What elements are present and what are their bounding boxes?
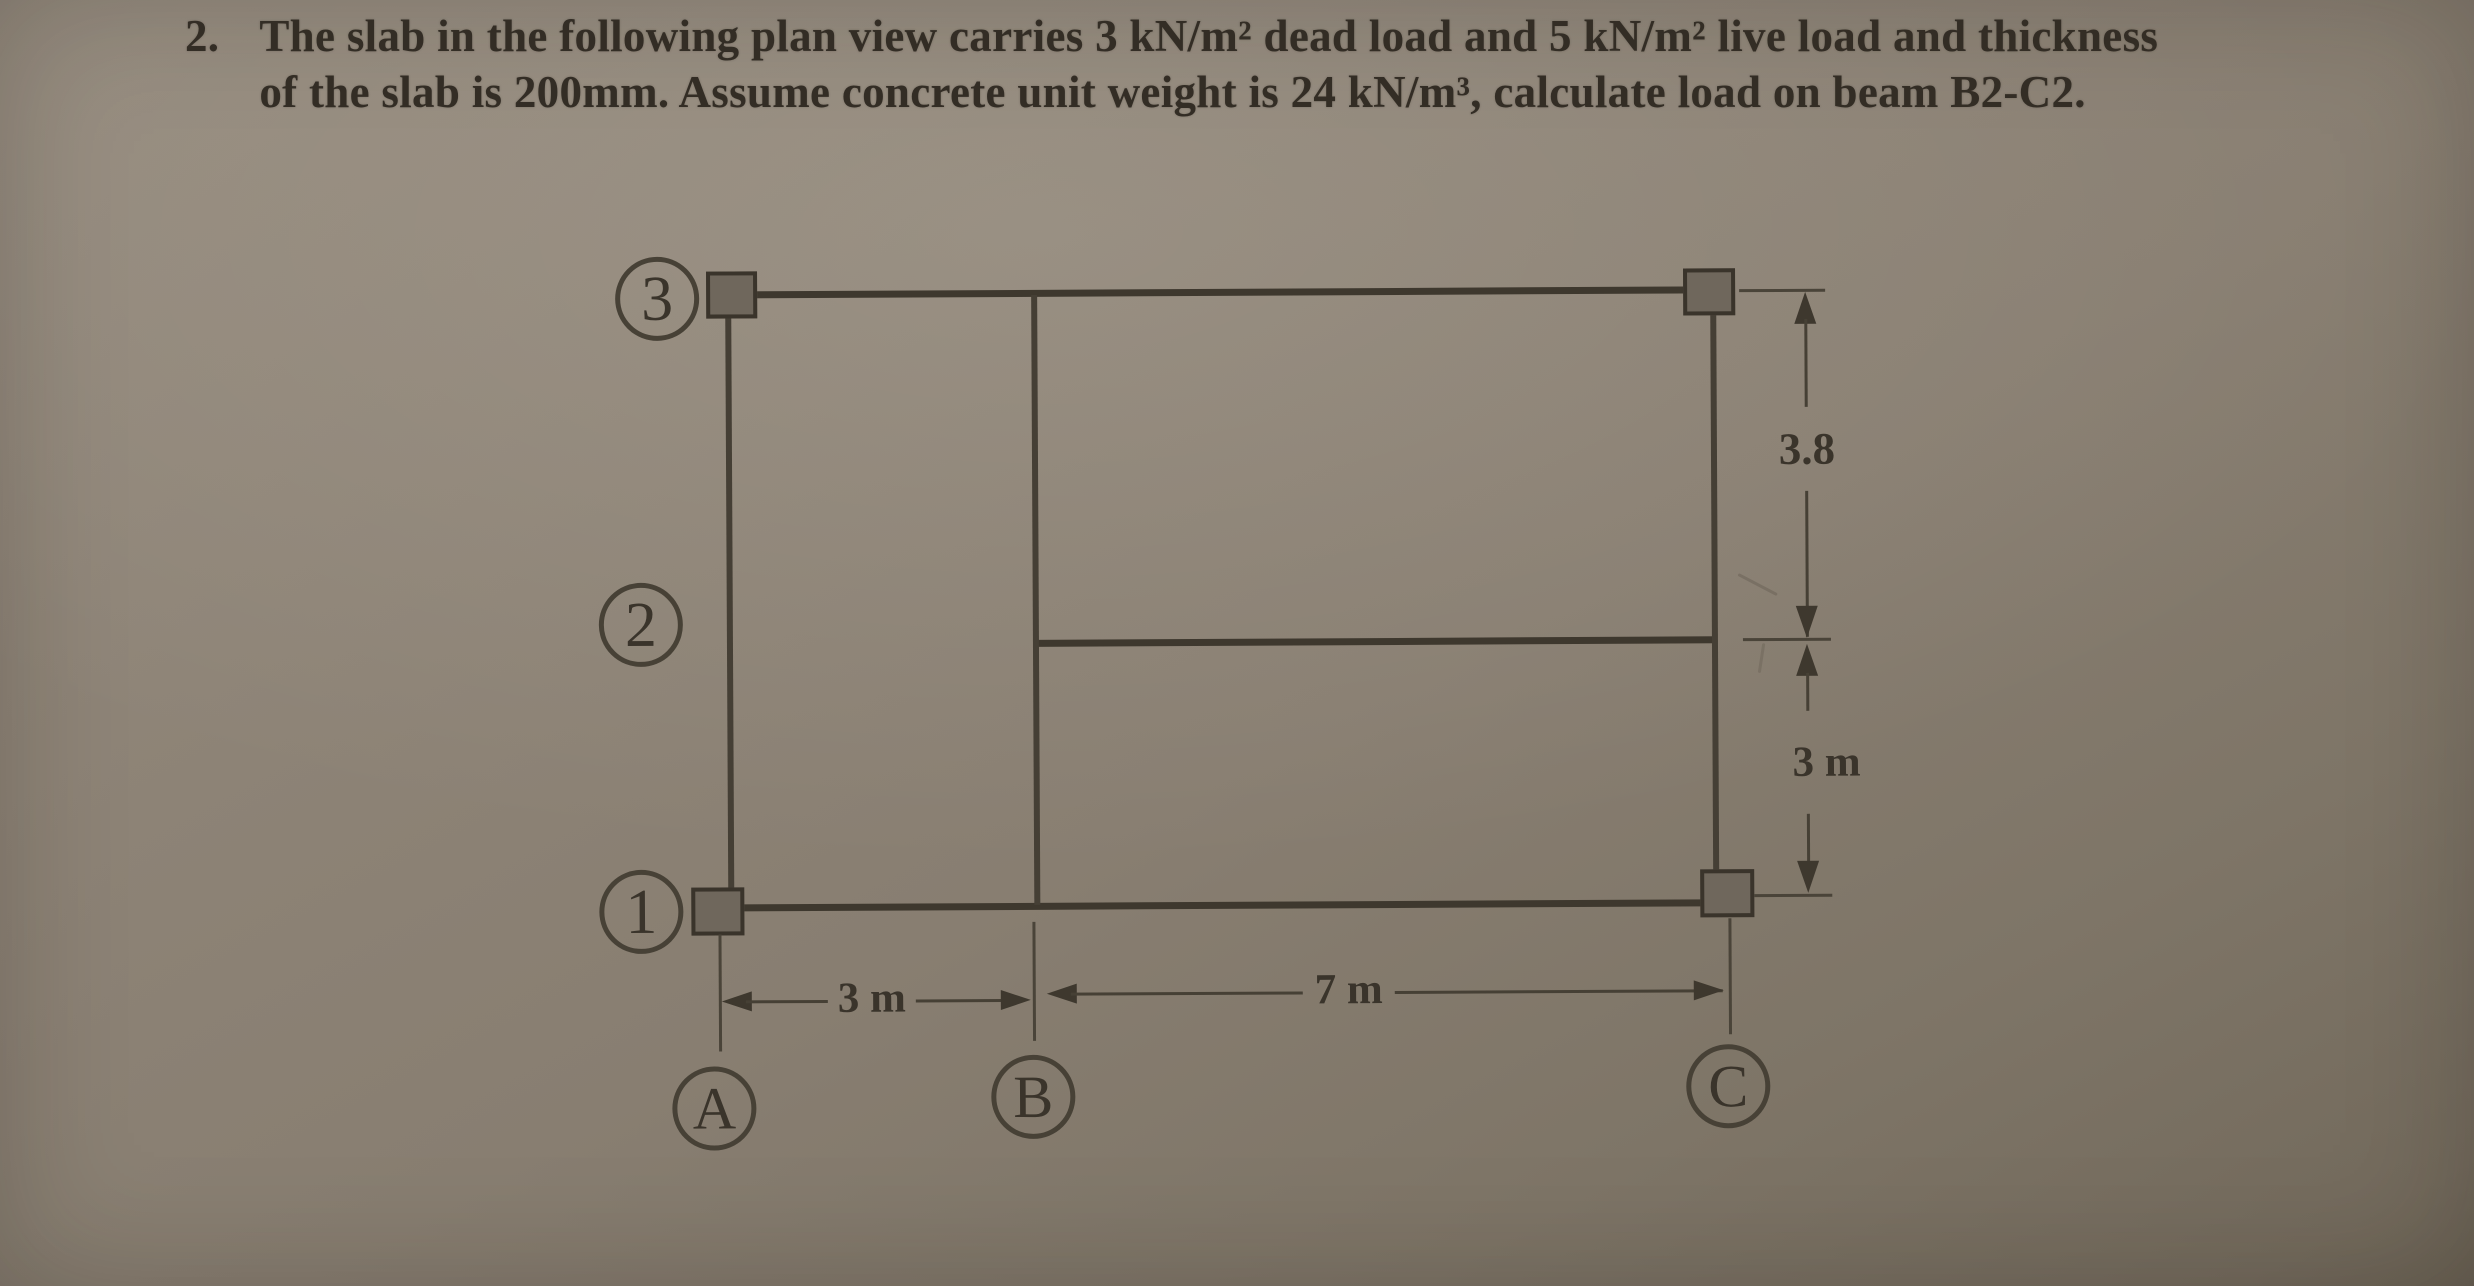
dim-arrow-down-3-8: [1796, 606, 1818, 638]
grid-bubble-row-1: 1: [599, 870, 683, 954]
plan-view-diagram: 3 2 1 A B C 3.8 3 m 3 m 7 m: [0, 0, 2474, 1286]
dim-label-3m-bottom: 3 m: [802, 973, 942, 1023]
grid-label-A: A: [693, 1074, 737, 1143]
extension-line-below-B: [1032, 922, 1036, 1041]
grid-bubble-row-3: 3: [615, 257, 699, 341]
dim-line-7m-left: [1071, 991, 1303, 995]
dim-label-3-8: 3.8: [1752, 423, 1862, 476]
dim-line-3m-right-upper: [1806, 673, 1809, 711]
beam-gridline-1: [717, 899, 1729, 911]
dim-arrow-down-3m-right: [1797, 861, 1819, 893]
extension-line-below-C: [1728, 918, 1732, 1034]
dim-arrow-right-7m: [1694, 980, 1724, 1000]
dim-line-3-8-upper: [1804, 319, 1807, 407]
dim-label-3m-right: 3 m: [1760, 737, 1892, 787]
pencil-smudge: [1737, 573, 1777, 596]
grid-bubble-col-A: A: [672, 1066, 756, 1150]
grid-label-B: B: [1013, 1062, 1053, 1131]
beam-B2-C2: [1037, 636, 1715, 647]
grid-bubble-row-2: 2: [599, 583, 683, 667]
column-line-A: [725, 315, 734, 891]
dim-line-3m-right-lower: [1807, 814, 1810, 867]
column-line-C: [1710, 313, 1719, 872]
dim-arrow-up-3m-right: [1796, 644, 1818, 676]
column-line-B: [1031, 295, 1040, 905]
grid-bubble-col-C: C: [1686, 1044, 1770, 1128]
pencil-smudge: [1758, 643, 1766, 673]
beam-gridline-3: [735, 286, 1711, 298]
column-3C: [1683, 268, 1735, 315]
grid-label-C: C: [1708, 1052, 1748, 1121]
dim-arrow-right-3m-bottom: [1001, 990, 1031, 1010]
column-1C: [1700, 869, 1754, 917]
extension-line-right-mid: [1743, 638, 1831, 641]
grid-label-1: 1: [625, 875, 657, 949]
dim-line-3m-bottom-right: [916, 999, 1004, 1002]
worksheet-photo: 2. The slab in the following plan view c…: [0, 0, 2474, 1286]
dim-line-7m-right: [1395, 989, 1723, 994]
column-3A: [706, 271, 757, 318]
dim-label-7m: 7 m: [1279, 965, 1419, 1015]
grid-label-3: 3: [641, 262, 673, 336]
grid-label-2: 2: [625, 588, 657, 662]
grid-bubble-col-B: B: [991, 1055, 1075, 1139]
column-1A: [691, 887, 744, 935]
extension-line-right-bottom: [1754, 894, 1832, 897]
